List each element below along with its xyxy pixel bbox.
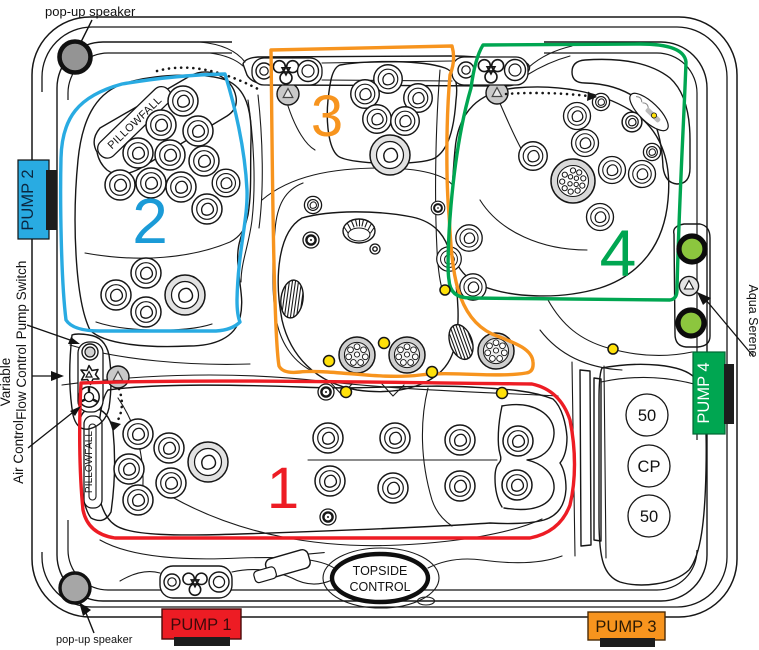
svg-text:Aqua Serene: Aqua Serene: [746, 285, 759, 358]
svg-text:PUMP 1: PUMP 1: [170, 616, 231, 634]
svg-text:1: 1: [267, 456, 299, 521]
svg-text:Variable: Variable: [0, 358, 13, 407]
svg-text:CONTROL: CONTROL: [349, 580, 410, 594]
svg-text:50: 50: [638, 407, 656, 425]
svg-text:50: 50: [640, 508, 658, 526]
svg-text:PUMP 2: PUMP 2: [19, 169, 37, 230]
svg-text:Flow Control: Flow Control: [14, 344, 29, 420]
svg-text:Pump Switch: Pump Switch: [14, 261, 29, 340]
svg-text:3: 3: [311, 84, 343, 149]
svg-text:Air Control: Air Control: [11, 420, 26, 484]
svg-text:pop-up speaker: pop-up speaker: [45, 4, 136, 19]
svg-text:CP: CP: [638, 458, 661, 476]
svg-text:2: 2: [132, 185, 168, 257]
svg-text:PUMP 4: PUMP 4: [695, 362, 713, 423]
svg-text:TOPSIDE: TOPSIDE: [353, 564, 408, 578]
svg-text:pop-up speaker: pop-up speaker: [56, 634, 133, 646]
svg-text:PILLOWFALL: PILLOWFALL: [84, 431, 95, 493]
svg-text:PUMP 3: PUMP 3: [595, 618, 656, 636]
svg-text:4: 4: [600, 216, 637, 290]
